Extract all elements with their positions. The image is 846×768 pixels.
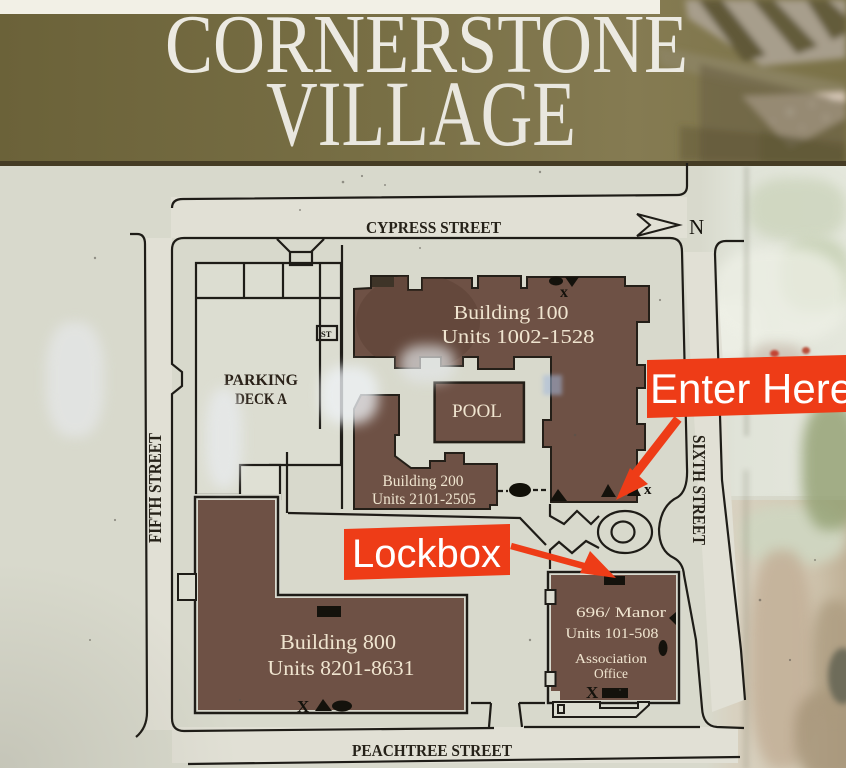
svg-text:PEACHTREE STREET: PEACHTREE STREET: [352, 741, 513, 760]
svg-text:ST: ST: [321, 329, 332, 339]
svg-text:SIXTH STREET: SIXTH STREET: [689, 435, 709, 545]
svg-text:Units 1002-1528: Units 1002-1528: [442, 326, 595, 348]
svg-text:Units 8201-8631: Units 8201-8631: [268, 656, 415, 680]
svg-text:POOL: POOL: [452, 401, 502, 422]
svg-text:Units 2101-2505: Units 2101-2505: [372, 491, 476, 508]
svg-text:DECK A: DECK A: [235, 391, 287, 408]
svg-text:x: x: [560, 284, 568, 301]
svg-text:X: X: [297, 697, 310, 716]
svg-text:Lockbox: Lockbox: [352, 532, 501, 576]
svg-text:Association: Association: [575, 651, 647, 666]
svg-text:696/ Manor: 696/ Manor: [576, 605, 666, 621]
svg-text:Building 100: Building 100: [454, 302, 569, 324]
svg-text:PARKING: PARKING: [224, 372, 299, 389]
svg-text:Office: Office: [594, 666, 628, 681]
svg-text:N: N: [689, 215, 704, 239]
svg-text:CYPRESS STREET: CYPRESS STREET: [366, 218, 502, 237]
svg-text:Enter Here: Enter Here: [650, 365, 846, 412]
svg-text:Building 200: Building 200: [383, 473, 464, 490]
svg-text:FIFTH STREET: FIFTH STREET: [145, 433, 165, 543]
svg-text:X: X: [586, 683, 599, 702]
svg-text:Units 101-508: Units 101-508: [566, 626, 659, 642]
svg-text:Building 800: Building 800: [280, 630, 396, 654]
